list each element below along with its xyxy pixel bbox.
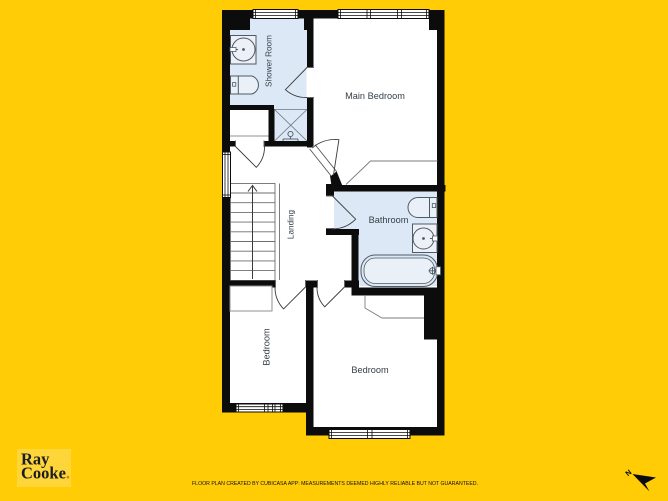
- svg-text:Main Bedroom: Main Bedroom: [345, 91, 405, 101]
- svg-text:Shower Room: Shower Room: [265, 35, 274, 87]
- svg-text:Bathroom: Bathroom: [369, 215, 409, 225]
- svg-text:Landing: Landing: [287, 209, 296, 239]
- svg-text:Cooke.: Cooke.: [21, 463, 70, 482]
- svg-text:FLOOR PLAN CREATED BY CUBICASA: FLOOR PLAN CREATED BY CUBICASA APP: MEAS…: [192, 481, 478, 487]
- svg-text:Bedroom: Bedroom: [351, 365, 389, 375]
- svg-text:Bedroom: Bedroom: [261, 328, 271, 366]
